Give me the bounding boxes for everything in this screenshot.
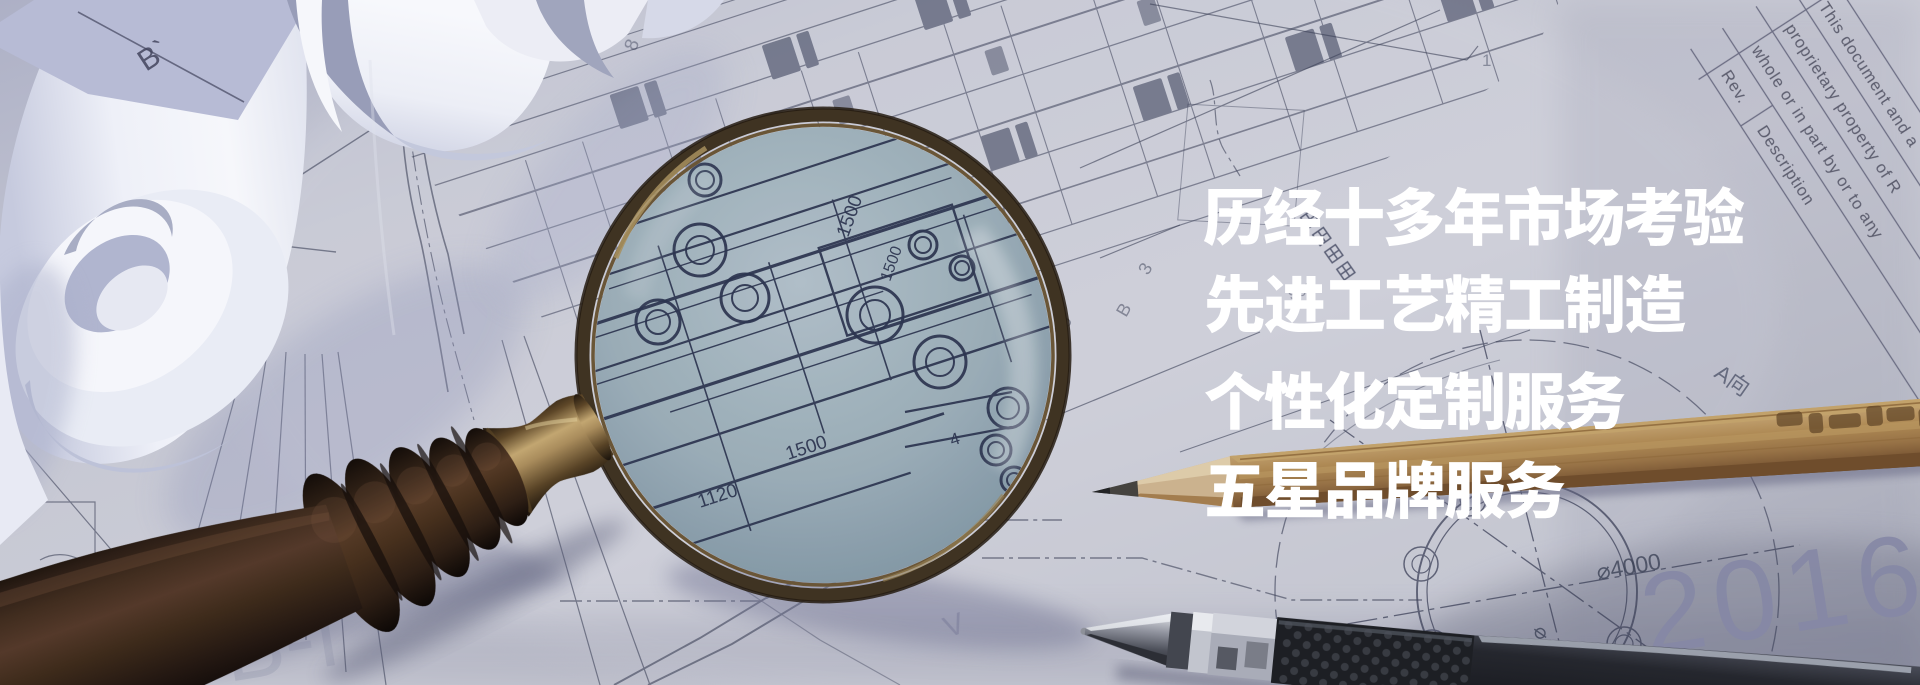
svg-text:1: 1 [1482, 51, 1491, 70]
